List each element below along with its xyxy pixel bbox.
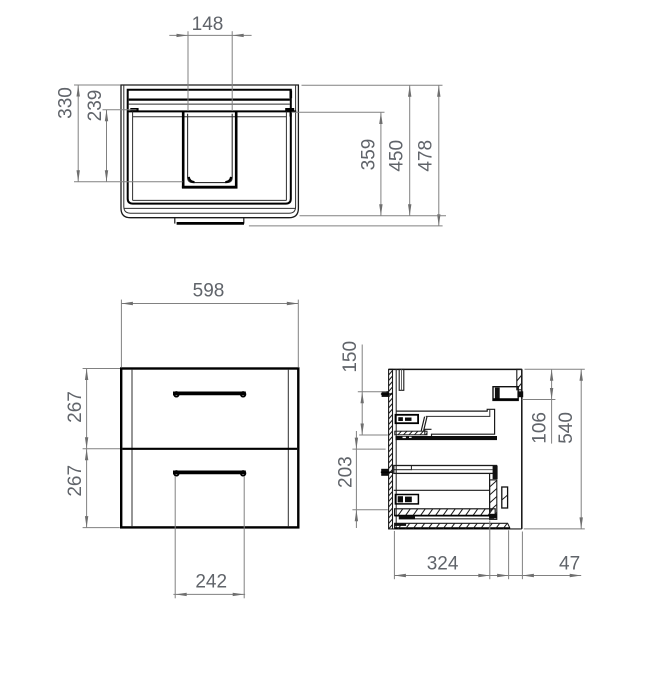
svg-text:478: 478 (415, 140, 436, 172)
svg-text:267: 267 (65, 391, 86, 423)
svg-text:450: 450 (386, 140, 407, 172)
svg-text:324: 324 (427, 553, 459, 574)
svg-text:203: 203 (335, 456, 356, 488)
svg-text:242: 242 (195, 571, 227, 592)
svg-text:267: 267 (65, 465, 86, 497)
svg-text:47: 47 (559, 553, 580, 574)
svg-text:150: 150 (340, 341, 361, 373)
svg-text:106: 106 (529, 412, 550, 444)
svg-text:540: 540 (556, 412, 577, 444)
svg-text:239: 239 (85, 90, 106, 122)
svg-text:148: 148 (192, 14, 224, 35)
svg-text:598: 598 (193, 281, 225, 302)
svg-text:330: 330 (56, 87, 77, 119)
svg-text:359: 359 (358, 139, 379, 171)
